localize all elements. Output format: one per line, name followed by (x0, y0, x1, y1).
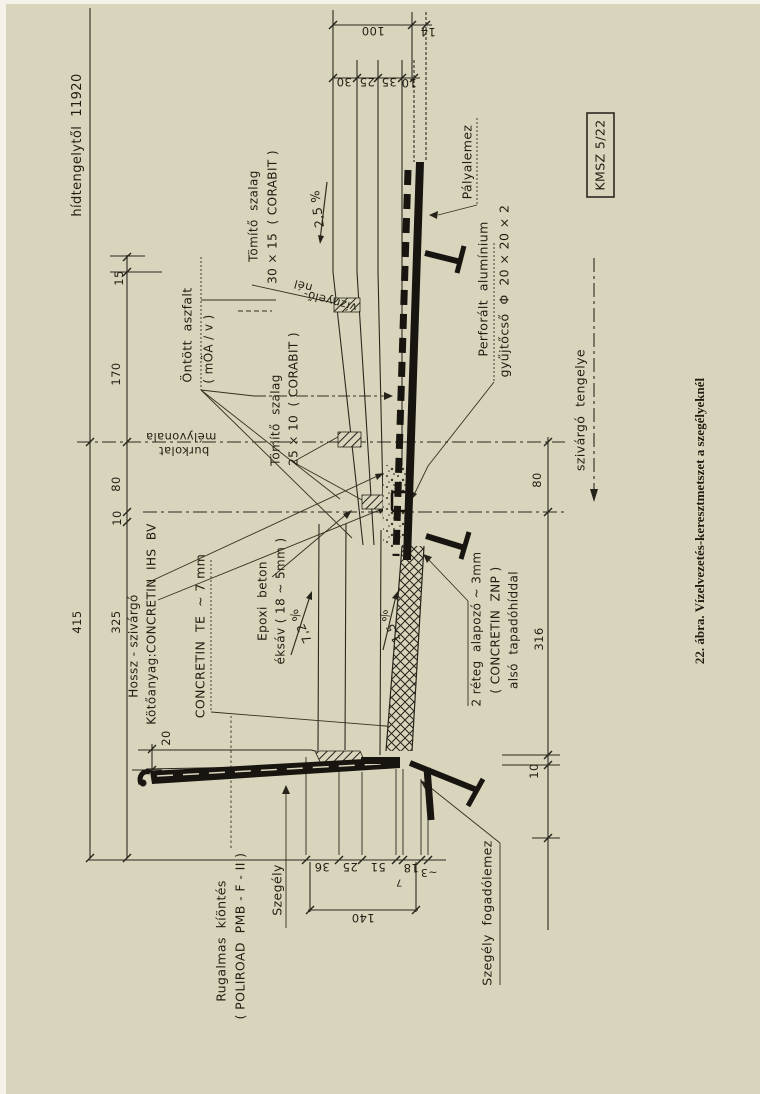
label-ontott-aszfalt: Öntött aszfalt (180, 287, 193, 382)
dim-hidtengelytol: hídtengelytől 11920 (71, 73, 85, 216)
label-tomito-25-meret: 25 × 10 ( CORABIT ) (288, 332, 301, 466)
label-palyalemez: Pályalemez (460, 125, 473, 200)
dim-20: 20 (160, 730, 172, 745)
dim-30: 30 (336, 76, 351, 88)
label-burkolat: burkolat (159, 445, 210, 457)
dim-80-right: 80 (531, 472, 543, 487)
dim-80-left: 80 (110, 476, 122, 491)
dim-415: 415 (71, 610, 83, 633)
dim-25-top: 25 (359, 76, 374, 88)
label-tomito-30-meret: 30 × 15 ( CORABIT ) (267, 150, 280, 284)
label-concretin-znp: ( CONCRETIN ZNP ) (490, 566, 503, 693)
scan-margin-left (0, 0, 6, 1094)
dim-14: 14 (420, 26, 435, 38)
dim-25-bottom: 25 (342, 861, 357, 873)
dim-7: 7 (396, 876, 403, 887)
drawing-page: hídtengelytől 1192015170801041532520Hoss… (0, 0, 760, 1094)
label-epoxi-eksav: éksáv ( 18 ~ 5mm ) (275, 537, 288, 664)
label-perforalt: Perforált alumínium (476, 221, 489, 356)
label-melyvonala: mélyvonala (146, 431, 217, 443)
dim-15: 15 (113, 270, 125, 285)
label-moav: ( mÖA / v ) (203, 314, 216, 383)
dim-10-right: 10 (528, 763, 540, 778)
dim-35: 35 (381, 76, 396, 88)
stamp-kmsz: KMSZ 5/22 (593, 119, 606, 190)
dim-10-left: 10 (111, 510, 123, 525)
label-szegely-fogadolemez: Szegély fogadólemez (480, 840, 493, 985)
dim-51: 51 (370, 861, 385, 873)
label-rugalmas: Rugalmas kíöntés (214, 880, 227, 1002)
label-hossz-szivargo: Hossz - szivárgó (128, 594, 141, 698)
scan-margin-top (0, 0, 760, 4)
dim-170: 170 (110, 362, 122, 385)
label-poliroad: ( POLIROAD PMB - F - II ) (233, 853, 246, 1020)
drawing-linework (0, 0, 760, 1094)
dim-316: 316 (533, 627, 545, 650)
dim-36: 36 (314, 861, 329, 873)
dim-325: 325 (110, 610, 122, 633)
label-2reteg: 2 réteg alapozó ~ 3mm (471, 552, 484, 707)
dim-10-top: 10 (401, 77, 416, 89)
label-tomito-szalag-25: Tömítő szalag (270, 374, 283, 466)
label-kotoanyag: Kötőanyag:CONCRETIN IHS BV (146, 523, 159, 724)
label-epoxi-beton: Epoxi beton (257, 561, 270, 641)
label-szivargo-tengelye: szivárgó tengelye (573, 349, 586, 471)
dim-100: 100 (361, 25, 384, 37)
figure-caption: 22. ábra. Vízelvezetés-keresztmetszet a … (693, 378, 707, 664)
label-szegely: Szegély (270, 864, 283, 915)
label-gyujtocso: gyűjtőcső Φ 20 × 20 × 2 (497, 205, 510, 378)
label-tapadohid: alsó tapadóhíddal (508, 571, 521, 689)
label-concretin-te: CONCRETIN TE ~ 7 mm (193, 554, 206, 718)
dim-140: 140 (351, 912, 374, 924)
dim-18: 18 (403, 862, 418, 874)
label-tomito-szalag-30: Tömítő szalag (248, 170, 261, 262)
dim-tilde3: ~3 (420, 866, 437, 878)
